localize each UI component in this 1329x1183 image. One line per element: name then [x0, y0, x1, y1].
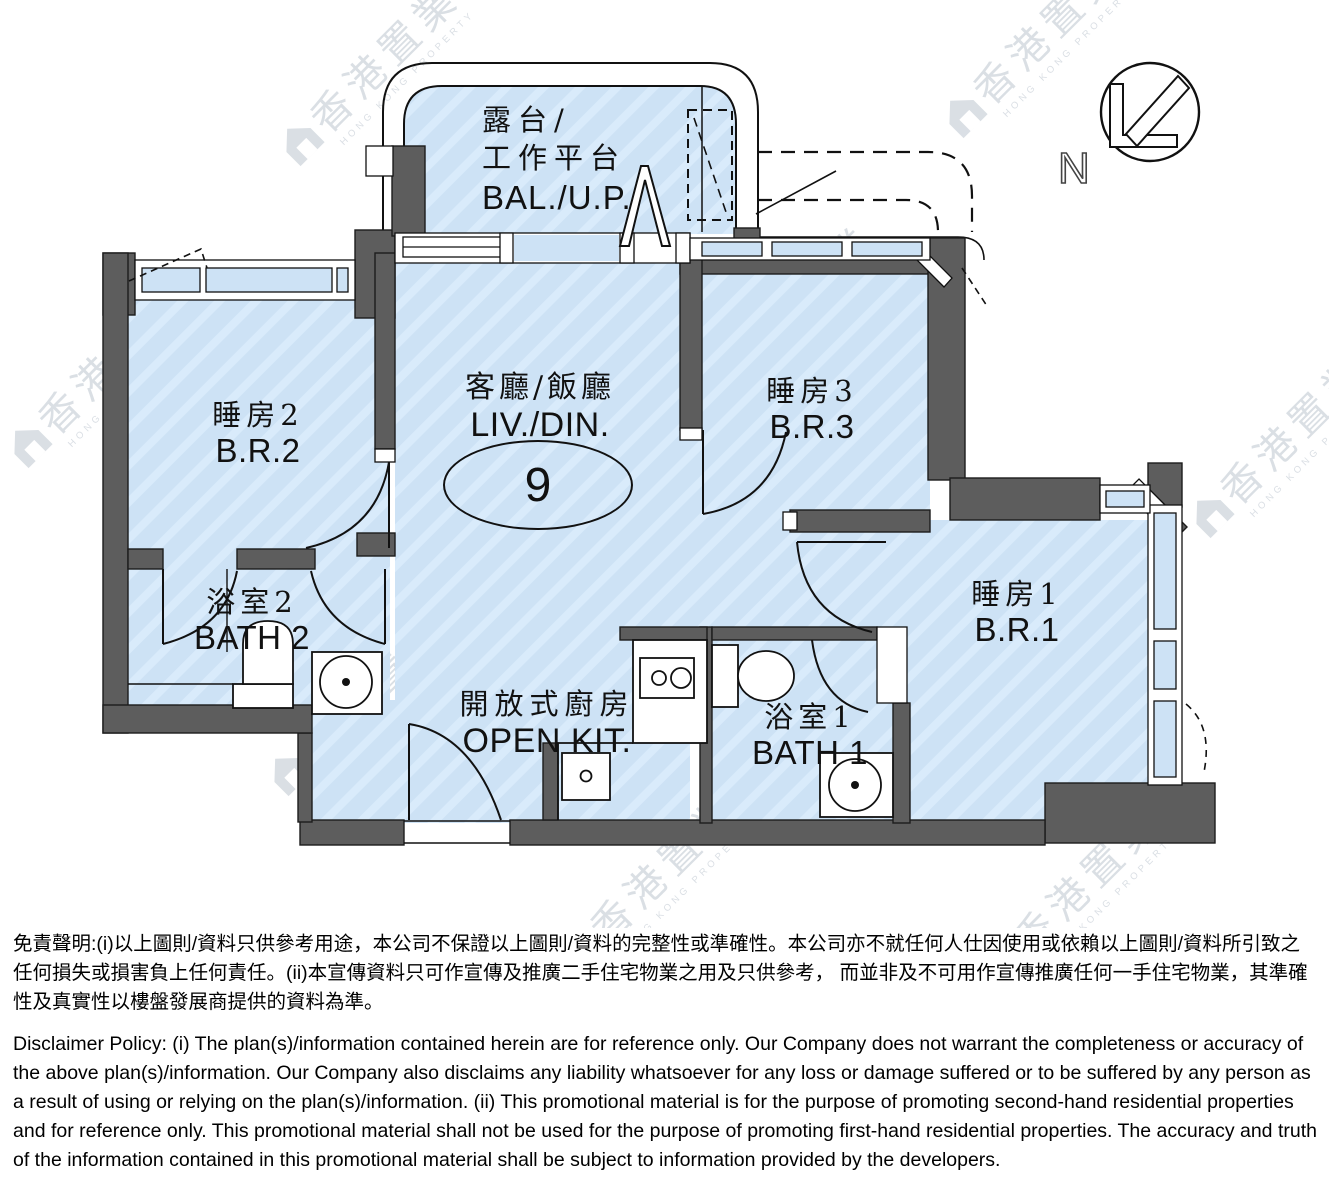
north-label: N	[1058, 144, 1090, 194]
entrance-threshold	[404, 821, 510, 843]
exterior-dashed-door	[1186, 704, 1206, 772]
bath2-label: 浴室2 BATH 2	[194, 585, 310, 658]
open-kitchen-label: 開放式廚房 OPEN KIT.	[459, 687, 634, 761]
floor-plan-page: 香港置業 HONG KONG PROPERTY	[0, 0, 1329, 1183]
toilet1-icon	[712, 645, 794, 707]
bedroom2-label: 睡房2 B.R.2	[212, 398, 303, 471]
floor-plan-drawing: 香港置業 HONG KONG PROPERTY	[0, 0, 1329, 928]
north-arrow-icon	[1101, 63, 1199, 161]
balcony-label-zh1: 露台/	[482, 102, 632, 140]
disclaimer-zh: 免責聲明:(i)以上圖則/資料只供參考用途，本公司不保證以上圖則/資料的完整性或…	[13, 930, 1317, 1017]
disclaimer-en: Disclaimer Policy: (i) The plan(s)/infor…	[13, 1030, 1317, 1175]
balcony-label-zh2: 工作平台	[482, 140, 632, 178]
balcony-label: 露台/ 工作平台 BAL./U.P.	[482, 102, 632, 220]
unit-number: 9	[525, 458, 552, 513]
bedroom3-label: 睡房3 B.R.3	[766, 374, 857, 447]
notch-dashed-line	[962, 268, 987, 306]
bath1-label: 浴室1 BATH 1	[752, 700, 868, 773]
vanity2-sink-icon	[312, 652, 382, 714]
balcony-label-en: BAL./U.P.	[482, 177, 632, 220]
disclaimer-block: 免責聲明:(i)以上圖則/資料只供參考用途，本公司不保證以上圖則/資料的完整性或…	[13, 930, 1317, 1175]
bedroom1-label: 睡房1 B.R.1	[971, 577, 1062, 650]
living-dining-label: 客廳/飯廳 LIV./DIN.	[465, 370, 615, 446]
hall-strip-area	[310, 700, 397, 822]
bedroom1-area	[883, 520, 1150, 823]
stove-icon	[633, 640, 707, 743]
corridor-area	[690, 530, 890, 630]
unit-number-badge: 9	[443, 440, 633, 530]
